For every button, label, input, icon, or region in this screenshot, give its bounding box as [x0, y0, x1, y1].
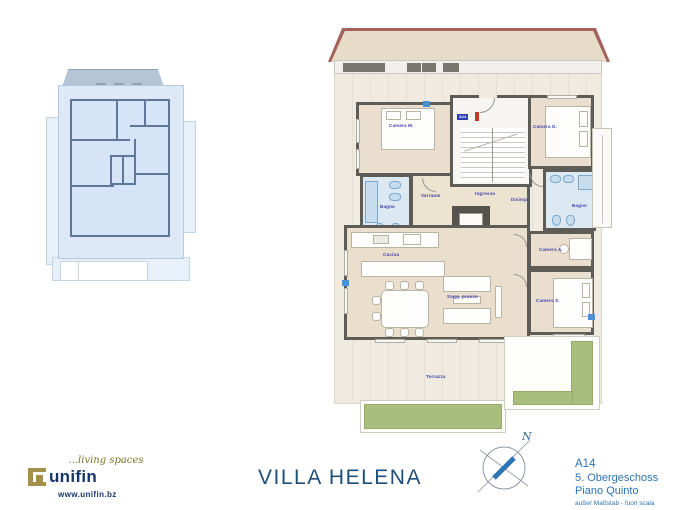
bidet: [566, 215, 575, 226]
compass-needle: [494, 458, 514, 478]
pillow: [386, 111, 401, 120]
window: [547, 95, 577, 99]
unit-entry-tag: A14: [457, 114, 468, 120]
floor-name-german: 5. Obergeschoss: [575, 472, 658, 485]
bathtub: [365, 181, 378, 223]
mini-wall: [136, 173, 170, 175]
mini-porch-divider: [78, 261, 79, 279]
wall-marker: [342, 280, 349, 286]
website-url: www.unifin.bz: [58, 490, 117, 499]
room-living: Cucina Sogg. pranzo: [344, 225, 530, 340]
sofa: [443, 276, 491, 292]
room-label: Vorraum: [421, 193, 441, 198]
roof-fascia: [334, 60, 602, 74]
shower: [578, 175, 593, 190]
pillow: [406, 111, 421, 120]
planter-green-vertical: [571, 341, 593, 405]
sofa: [443, 308, 491, 324]
mini-right-terrace: [182, 121, 196, 233]
balcony-rail-line: [602, 135, 603, 223]
pillow: [582, 283, 590, 298]
company-logo: unifin: [28, 467, 97, 487]
room-label: Camera A.: [539, 247, 563, 252]
chair: [372, 296, 381, 305]
desk: [569, 238, 592, 260]
chair: [415, 328, 424, 337]
unit-entry-tag-label: A14: [459, 114, 466, 119]
room-camera-s: Camera S.: [528, 269, 594, 335]
entry-door-marker: [475, 112, 479, 121]
entry-door-swing: [480, 98, 495, 113]
company-name: unifin: [49, 467, 97, 487]
planter-green-horizontal: [513, 391, 573, 405]
unit-number: A14: [575, 458, 658, 471]
main-floor-plan: Vorraum Ingresso Disimp. Camera M. Bagno: [322, 28, 614, 438]
room-camera-a: Camera A.: [528, 231, 594, 269]
fascia-wall-block: [407, 63, 421, 72]
kitchen-island: [361, 261, 445, 277]
pillow: [579, 111, 588, 127]
mini-wall: [70, 185, 114, 187]
window: [375, 339, 405, 343]
mini-wall: [116, 99, 118, 139]
plan-sheet: Vorraum Ingresso Disimp. Camera M. Bagno: [0, 0, 680, 510]
planter-frame-right: [504, 336, 600, 410]
room-label: Cucina: [383, 252, 399, 257]
north-label: N: [522, 430, 532, 443]
chair: [372, 312, 381, 321]
window: [356, 119, 360, 143]
unifin-logo-icon: [28, 468, 46, 486]
compass: N: [470, 428, 554, 506]
chair: [400, 281, 409, 290]
kitchen-sink: [373, 235, 389, 244]
brand-tagline: ...living spaces: [48, 455, 164, 466]
stairs: [461, 128, 525, 182]
stairwell: A14: [450, 95, 532, 187]
mini-wall: [144, 99, 146, 127]
scale-note: außer Maßstab - fuori scala: [575, 500, 658, 507]
mini-porch: [60, 261, 148, 281]
room-label: Bagno: [572, 203, 587, 208]
pillow: [579, 131, 588, 147]
chair: [415, 281, 424, 290]
logo-icon-inner-gold: [36, 475, 43, 482]
roof-surface: [331, 31, 607, 62]
chair: [385, 328, 394, 337]
chair: [400, 328, 409, 337]
wall-marker: [423, 101, 430, 107]
chair: [385, 281, 394, 290]
window: [427, 339, 457, 343]
dining-table: [381, 290, 429, 328]
room-label: Camera D.: [533, 124, 557, 129]
room-bagno-right: Bagno: [543, 169, 596, 231]
mini-stair-divider: [122, 157, 124, 183]
room-label: Disimp.: [511, 197, 529, 202]
plan-info-block: A14 5. Obergeschoss Piano Quinto außer M…: [575, 458, 658, 507]
mini-wall: [70, 139, 130, 141]
wall-marker: [588, 314, 595, 320]
fascia-wall-block: [343, 63, 385, 72]
mini-wall: [130, 125, 170, 127]
room-label: Ingresso: [475, 191, 495, 196]
cooktop: [403, 234, 421, 245]
window: [356, 149, 360, 169]
mini-wall: [134, 139, 136, 175]
toilet: [552, 215, 561, 226]
fascia-wall-block: [422, 63, 436, 72]
french-balcony: [592, 128, 612, 228]
roof: [328, 28, 610, 62]
fascia-wall-block: [443, 63, 459, 72]
room-label: Terrazza: [426, 374, 446, 379]
kitchen-counter: [351, 232, 439, 248]
tv-sideboard: [495, 286, 502, 318]
sink: [389, 181, 401, 189]
room-label: Bagno: [380, 204, 395, 209]
sink: [563, 175, 574, 183]
sink: [550, 175, 561, 183]
floor-name-italian: Piano Quinto: [575, 485, 658, 498]
room-camera-m: Camera M.: [356, 102, 456, 176]
page-title: VILLA HELENA: [240, 466, 440, 490]
overview-mini-plan: [38, 55, 198, 290]
room-label: Camera S.: [536, 298, 560, 303]
sink: [389, 193, 401, 201]
window: [344, 250, 348, 276]
stairs-divider: [492, 128, 493, 182]
window: [344, 288, 348, 314]
planter-green: [364, 404, 502, 429]
room-label: Sogg. pranzo: [447, 294, 478, 299]
room-label: Camera M.: [389, 123, 414, 128]
room-camera-d: Camera D.: [528, 95, 594, 169]
